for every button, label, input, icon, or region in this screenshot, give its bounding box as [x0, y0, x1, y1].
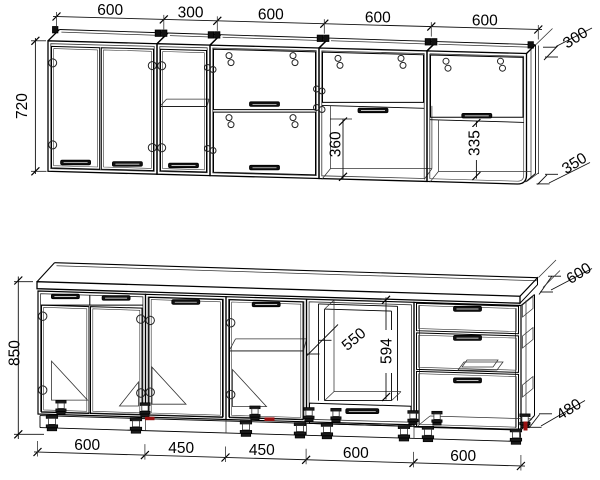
- svg-text:850: 850: [7, 340, 24, 366]
- svg-text:600: 600: [74, 437, 100, 454]
- svg-text:450: 450: [168, 440, 194, 457]
- svg-text:335: 335: [466, 130, 483, 156]
- svg-text:450: 450: [249, 442, 275, 459]
- svg-text:600: 600: [472, 12, 498, 29]
- svg-text:594: 594: [378, 338, 395, 364]
- svg-text:360: 360: [328, 131, 345, 157]
- svg-text:600: 600: [97, 2, 123, 19]
- svg-text:600: 600: [450, 448, 476, 465]
- svg-text:720: 720: [14, 93, 31, 119]
- svg-text:300: 300: [178, 4, 204, 21]
- svg-text:600: 600: [343, 445, 369, 462]
- svg-text:600: 600: [258, 7, 284, 24]
- svg-text:600: 600: [365, 10, 391, 27]
